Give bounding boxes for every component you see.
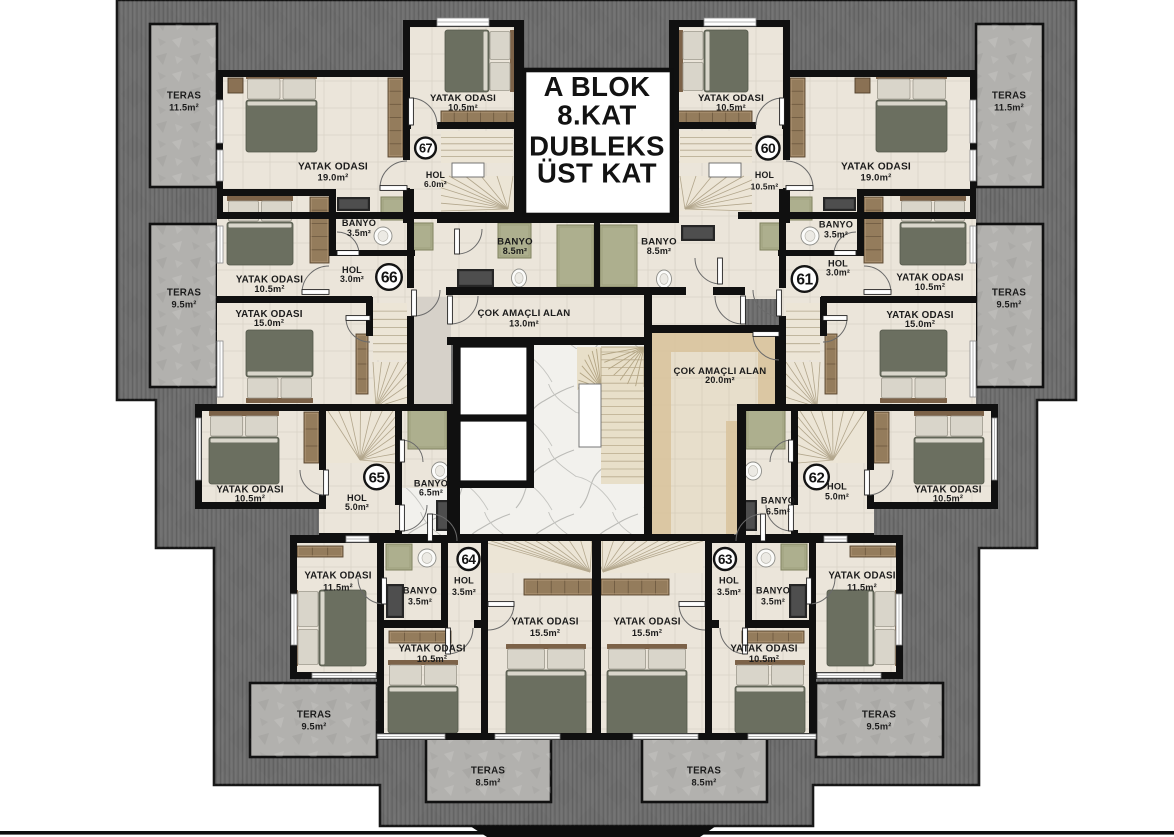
- svg-text:5.0m²: 5.0m²: [345, 502, 369, 512]
- svg-text:HOL: HOL: [755, 170, 775, 180]
- svg-text:HOL: HOL: [454, 575, 474, 585]
- svg-text:YATAK ODASI: YATAK ODASI: [304, 570, 371, 581]
- svg-text:8.5m²: 8.5m²: [475, 777, 500, 787]
- svg-text:8.KAT: 8.KAT: [557, 100, 636, 131]
- svg-text:3.5m²: 3.5m²: [408, 596, 432, 606]
- svg-text:67: 67: [419, 142, 433, 156]
- svg-text:ÇOK AMAÇLI ALAN: ÇOK AMAÇLI ALAN: [478, 308, 571, 319]
- svg-text:ÜST KAT: ÜST KAT: [537, 158, 657, 189]
- svg-text:8.5m²: 8.5m²: [647, 246, 672, 256]
- svg-text:3.5m²: 3.5m²: [347, 228, 371, 238]
- svg-text:YATAK ODASI: YATAK ODASI: [511, 616, 578, 627]
- svg-text:3.5m²: 3.5m²: [761, 596, 785, 606]
- svg-text:BANYO: BANYO: [403, 585, 437, 595]
- svg-text:HOL: HOL: [719, 575, 739, 585]
- svg-text:15.0m²: 15.0m²: [254, 318, 284, 328]
- svg-text:6.5m²: 6.5m²: [766, 506, 790, 516]
- svg-text:15.5m²: 15.5m²: [632, 628, 662, 638]
- svg-text:3.0m²: 3.0m²: [826, 267, 850, 277]
- svg-text:62: 62: [809, 469, 825, 486]
- svg-text:TERAS: TERAS: [297, 709, 331, 720]
- svg-text:10.5m²: 10.5m²: [254, 284, 284, 294]
- svg-text:9.5m²: 9.5m²: [301, 721, 326, 731]
- svg-text:65: 65: [369, 469, 385, 486]
- svg-text:15.5m²: 15.5m²: [530, 628, 560, 638]
- svg-text:8.5m²: 8.5m²: [503, 246, 528, 256]
- svg-text:YATAK ODASI: YATAK ODASI: [730, 643, 797, 654]
- svg-text:TERAS: TERAS: [167, 287, 201, 298]
- svg-text:3.5m²: 3.5m²: [824, 229, 848, 239]
- svg-text:TERAS: TERAS: [471, 765, 505, 776]
- svg-text:6.0m²: 6.0m²: [424, 179, 447, 189]
- svg-text:TERAS: TERAS: [992, 287, 1026, 298]
- svg-text:YATAK ODASI: YATAK ODASI: [828, 570, 895, 581]
- svg-text:11.5m²: 11.5m²: [994, 102, 1024, 112]
- svg-text:11.5m²: 11.5m²: [323, 582, 353, 592]
- svg-text:3.0m²: 3.0m²: [340, 274, 364, 284]
- svg-text:10.5m²: 10.5m²: [749, 654, 779, 664]
- svg-text:3.5m²: 3.5m²: [717, 587, 741, 597]
- svg-text:10.5m²: 10.5m²: [417, 654, 447, 664]
- svg-text:9.5m²: 9.5m²: [866, 721, 891, 731]
- svg-text:64: 64: [462, 552, 477, 567]
- svg-text:TERAS: TERAS: [167, 90, 201, 101]
- svg-text:5.0m²: 5.0m²: [825, 491, 849, 501]
- svg-text:11.5m²: 11.5m²: [169, 102, 199, 112]
- svg-text:9.5m²: 9.5m²: [996, 299, 1021, 309]
- svg-text:BANYO: BANYO: [819, 219, 853, 229]
- svg-text:6.5m²: 6.5m²: [419, 487, 443, 497]
- svg-text:61: 61: [796, 272, 813, 289]
- svg-text:11.5m²: 11.5m²: [847, 582, 877, 592]
- svg-text:10.5m²: 10.5m²: [933, 493, 963, 503]
- svg-text:A BLOK: A BLOK: [544, 71, 651, 102]
- svg-text:10.5m²: 10.5m²: [751, 181, 779, 191]
- svg-text:TERAS: TERAS: [687, 765, 721, 776]
- svg-text:BANYO: BANYO: [756, 585, 790, 595]
- svg-text:HOL: HOL: [827, 481, 847, 491]
- svg-text:10.5m²: 10.5m²: [448, 102, 478, 112]
- svg-text:13.0m²: 13.0m²: [509, 318, 539, 328]
- svg-text:BANYO: BANYO: [761, 495, 795, 505]
- svg-text:YATAK ODASI: YATAK ODASI: [398, 643, 465, 654]
- svg-text:BANYO: BANYO: [342, 218, 376, 228]
- svg-text:19.0m²: 19.0m²: [861, 171, 892, 182]
- svg-text:60: 60: [761, 140, 776, 156]
- svg-text:TERAS: TERAS: [992, 90, 1026, 101]
- svg-text:TERAS: TERAS: [862, 709, 896, 720]
- svg-text:19.0m²: 19.0m²: [318, 171, 349, 182]
- svg-text:66: 66: [381, 270, 398, 287]
- svg-text:3.5m²: 3.5m²: [452, 587, 476, 597]
- svg-text:10.5m²: 10.5m²: [915, 282, 945, 292]
- svg-text:10.5m²: 10.5m²: [716, 102, 746, 112]
- svg-text:15.0m²: 15.0m²: [905, 319, 935, 329]
- svg-text:8.5m²: 8.5m²: [691, 777, 716, 787]
- svg-text:63: 63: [718, 552, 732, 567]
- svg-text:9.5m²: 9.5m²: [171, 299, 196, 309]
- svg-text:10.5m²: 10.5m²: [235, 493, 265, 503]
- svg-text:20.0m²: 20.0m²: [705, 375, 735, 385]
- svg-text:YATAK ODASI: YATAK ODASI: [613, 616, 680, 627]
